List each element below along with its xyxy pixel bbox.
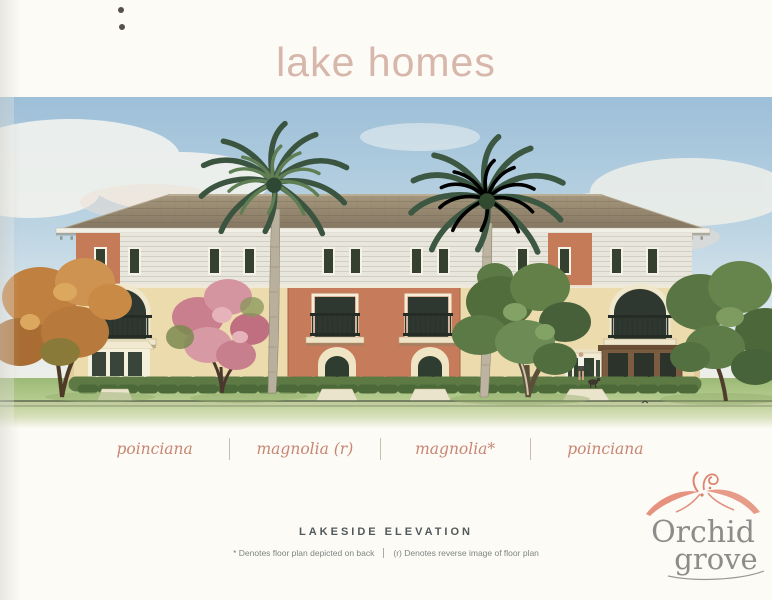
unit-label-magnolia: magnolia* — [381, 440, 530, 458]
orchid-grove-logo: Orchid grove — [640, 468, 768, 592]
page-title: lake homes — [0, 42, 772, 83]
orchid-flourish-icon — [646, 472, 760, 516]
unit-label-magnolia-r: magnolia (r) — [230, 440, 379, 458]
logo-line-grove: grove — [674, 542, 757, 576]
brochure-page: lake homes — [0, 0, 772, 600]
elevation-illustration-svg — [0, 97, 772, 428]
unit-label-poinciana-right: poinciana — [531, 440, 680, 458]
footnote-left: * Denotes floor plan depicted on back — [233, 548, 374, 558]
registration-dot — [118, 7, 124, 13]
footnote-divider — [383, 548, 384, 558]
registration-dot — [119, 24, 125, 30]
footnote-right: (r) Denotes reverse image of floor plan — [393, 548, 539, 558]
unit-label-poinciana-left: poinciana — [80, 440, 229, 458]
elevation-illustration — [0, 97, 772, 428]
scan-glare — [0, 97, 14, 428]
roof — [56, 195, 710, 238]
building — [56, 195, 710, 390]
hedges — [76, 384, 700, 389]
third-floor — [76, 233, 692, 287]
unit-label-row: poinciana magnolia (r) magnolia* poincia… — [80, 438, 680, 460]
